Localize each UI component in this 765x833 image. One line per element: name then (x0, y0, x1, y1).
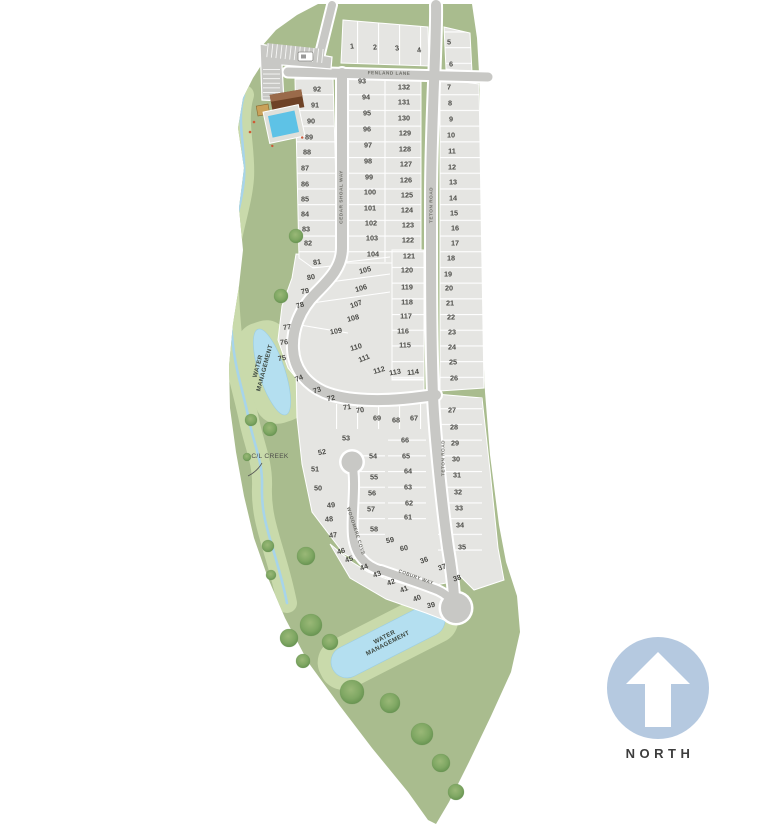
street-label: TETON ROAD (429, 187, 435, 223)
lot-number-55: 55 (370, 473, 378, 482)
tree-icon (262, 540, 274, 552)
lot-number-82: 82 (304, 239, 312, 248)
tree-icon (380, 693, 400, 713)
lot-number-65: 65 (402, 452, 410, 461)
lot-number-53: 53 (342, 434, 350, 443)
lot-number-5: 5 (447, 38, 451, 47)
block-lots-1-4 (341, 20, 429, 66)
lot-number-8: 8 (448, 99, 452, 108)
street-label: CEDAR SHOAL WAY (339, 170, 345, 224)
lot-number-81: 81 (312, 257, 321, 267)
lot-number-56: 56 (368, 489, 376, 498)
lot-number-50: 50 (314, 484, 322, 493)
lot-number-31: 31 (453, 471, 461, 480)
lot-number-19: 19 (444, 270, 452, 279)
umbrella-icon (253, 121, 256, 124)
lot-number-131: 131 (398, 98, 410, 107)
lot-number-66: 66 (401, 436, 409, 445)
tree-icon (297, 547, 315, 565)
lot-number-118: 118 (401, 298, 413, 307)
lot-number-60: 60 (399, 543, 409, 553)
site-plan-map: 1234567891011121314151617181920212223242… (0, 0, 765, 833)
tree-icon (340, 680, 364, 704)
lot-number-34: 34 (456, 521, 465, 530)
lot-number-61: 61 (404, 513, 412, 522)
north-label: NORTH (626, 746, 695, 761)
site-plan-page: 1234567891011121314151617181920212223242… (0, 0, 765, 833)
lot-number-69: 69 (373, 414, 381, 423)
lot-number-97: 97 (364, 141, 372, 150)
umbrella-icon (249, 131, 252, 134)
lot-number-63: 63 (404, 483, 412, 492)
tree-icon (289, 229, 303, 243)
lot-number-48: 48 (325, 514, 334, 524)
lot-number-120: 120 (401, 266, 413, 275)
lot-number-67: 67 (410, 414, 418, 423)
lot-number-11: 11 (448, 147, 456, 156)
lot-number-35: 35 (458, 543, 466, 552)
lot-number-119: 119 (401, 283, 413, 292)
creek-label: C/L CREEK (251, 453, 289, 460)
lot-number-18: 18 (447, 254, 455, 263)
lot-number-114: 114 (407, 367, 421, 377)
lot-number-121: 121 (403, 252, 415, 261)
lot-number-96: 96 (363, 125, 371, 134)
tree-icon (243, 453, 251, 461)
lot-number-83: 83 (302, 225, 310, 234)
lot-number-51: 51 (311, 465, 319, 474)
lot-number-80: 80 (306, 272, 316, 282)
lot-number-130: 130 (398, 114, 410, 123)
lot-number-22: 22 (447, 313, 455, 322)
lot-number-26: 26 (450, 374, 458, 383)
lot-number-89: 89 (305, 133, 313, 142)
tree-icon (263, 422, 277, 436)
lot-number-30: 30 (452, 455, 460, 464)
lot-number-62: 62 (405, 499, 413, 508)
lot-number-64: 64 (404, 467, 413, 476)
lot-number-85: 85 (301, 195, 309, 204)
tree-icon (274, 289, 288, 303)
block-lots-7-26 (440, 79, 484, 391)
lot-number-101: 101 (364, 204, 376, 213)
street-label: FENLAND LANE (368, 70, 411, 77)
tree-icon (448, 784, 464, 800)
lot-number-128: 128 (399, 145, 411, 154)
lot-number-17: 17 (451, 239, 459, 248)
lot-number-9: 9 (449, 115, 453, 124)
lot-number-27: 27 (448, 406, 456, 415)
tree-icon (411, 723, 433, 745)
lot-number-93: 93 (358, 77, 366, 86)
parking-spaces-side (263, 67, 280, 97)
lot-number-57: 57 (367, 505, 375, 514)
lot-number-95: 95 (363, 109, 371, 118)
lot-number-94: 94 (362, 93, 371, 102)
lot-number-21: 21 (446, 299, 454, 308)
lot-number-52: 52 (317, 447, 327, 457)
lot-number-127: 127 (400, 160, 412, 169)
tree-icon (245, 414, 257, 426)
tree-icon (296, 654, 310, 668)
lot-number-25: 25 (449, 358, 457, 367)
lot-number-86: 86 (301, 180, 309, 189)
lot-number-75: 75 (277, 353, 287, 363)
lot-number-102: 102 (365, 219, 377, 228)
tree-icon (300, 614, 322, 636)
lot-number-68: 68 (392, 416, 400, 425)
lot-number-77: 77 (282, 322, 291, 332)
lot-number-33: 33 (455, 504, 463, 513)
street-label: TETON ROAD (441, 440, 447, 476)
lot-number-6: 6 (449, 60, 453, 69)
tree-icon (280, 629, 298, 647)
lot-number-20: 20 (445, 284, 453, 293)
lot-number-15: 15 (450, 209, 458, 218)
lot-number-58: 58 (370, 525, 378, 534)
lot-number-115: 115 (399, 341, 411, 350)
lot-number-100: 100 (364, 188, 376, 197)
lot-number-125: 125 (401, 191, 413, 200)
lot-number-90: 90 (307, 117, 315, 126)
lot-number-123: 123 (402, 221, 414, 230)
lot-number-87: 87 (301, 164, 309, 173)
lot-number-129: 129 (399, 129, 411, 138)
tree-icon (322, 634, 338, 650)
lot-number-13: 13 (449, 178, 457, 187)
lot-number-10: 10 (447, 131, 455, 140)
tree-icon (432, 754, 450, 772)
lot-number-132: 132 (398, 83, 410, 92)
lot-number-32: 32 (454, 488, 462, 497)
lot-number-98: 98 (364, 157, 372, 166)
lot-number-84: 84 (301, 210, 310, 219)
lot-number-117: 117 (400, 312, 412, 321)
lot-number-71: 71 (342, 402, 351, 412)
lot-number-91: 91 (311, 101, 319, 110)
lot-number-16: 16 (451, 224, 459, 233)
lot-number-24: 24 (448, 343, 457, 352)
north-indicator: NORTH (607, 637, 709, 761)
lot-number-23: 23 (448, 328, 456, 337)
lot-number-28: 28 (450, 423, 458, 432)
lot-number-122: 122 (402, 236, 414, 245)
lot-number-29: 29 (451, 439, 459, 448)
lot-number-14: 14 (449, 194, 458, 203)
lot-number-47: 47 (328, 530, 337, 540)
lot-number-54: 54 (369, 452, 378, 461)
lot-number-116: 116 (397, 327, 409, 336)
lot-number-103: 103 (366, 234, 378, 243)
lot-number-88: 88 (303, 148, 311, 157)
lot-number-92: 92 (313, 85, 321, 94)
lot-number-7: 7 (447, 83, 451, 92)
lot-number-124: 124 (401, 206, 414, 215)
lot-number-12: 12 (448, 163, 456, 172)
lot-number-49: 49 (327, 500, 336, 510)
lot-number-99: 99 (365, 173, 373, 182)
lot-number-76: 76 (280, 337, 289, 347)
lot-number-126: 126 (400, 176, 412, 185)
entrance-sign (298, 52, 313, 61)
tree-icon (266, 570, 276, 580)
lot-number-104: 104 (367, 250, 380, 259)
lot-number-70: 70 (355, 405, 364, 415)
